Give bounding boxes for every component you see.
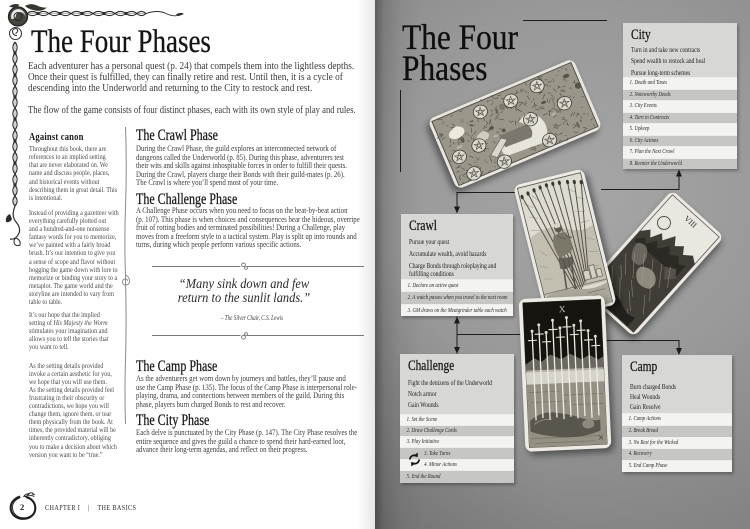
- svg-text:X: X: [558, 304, 565, 314]
